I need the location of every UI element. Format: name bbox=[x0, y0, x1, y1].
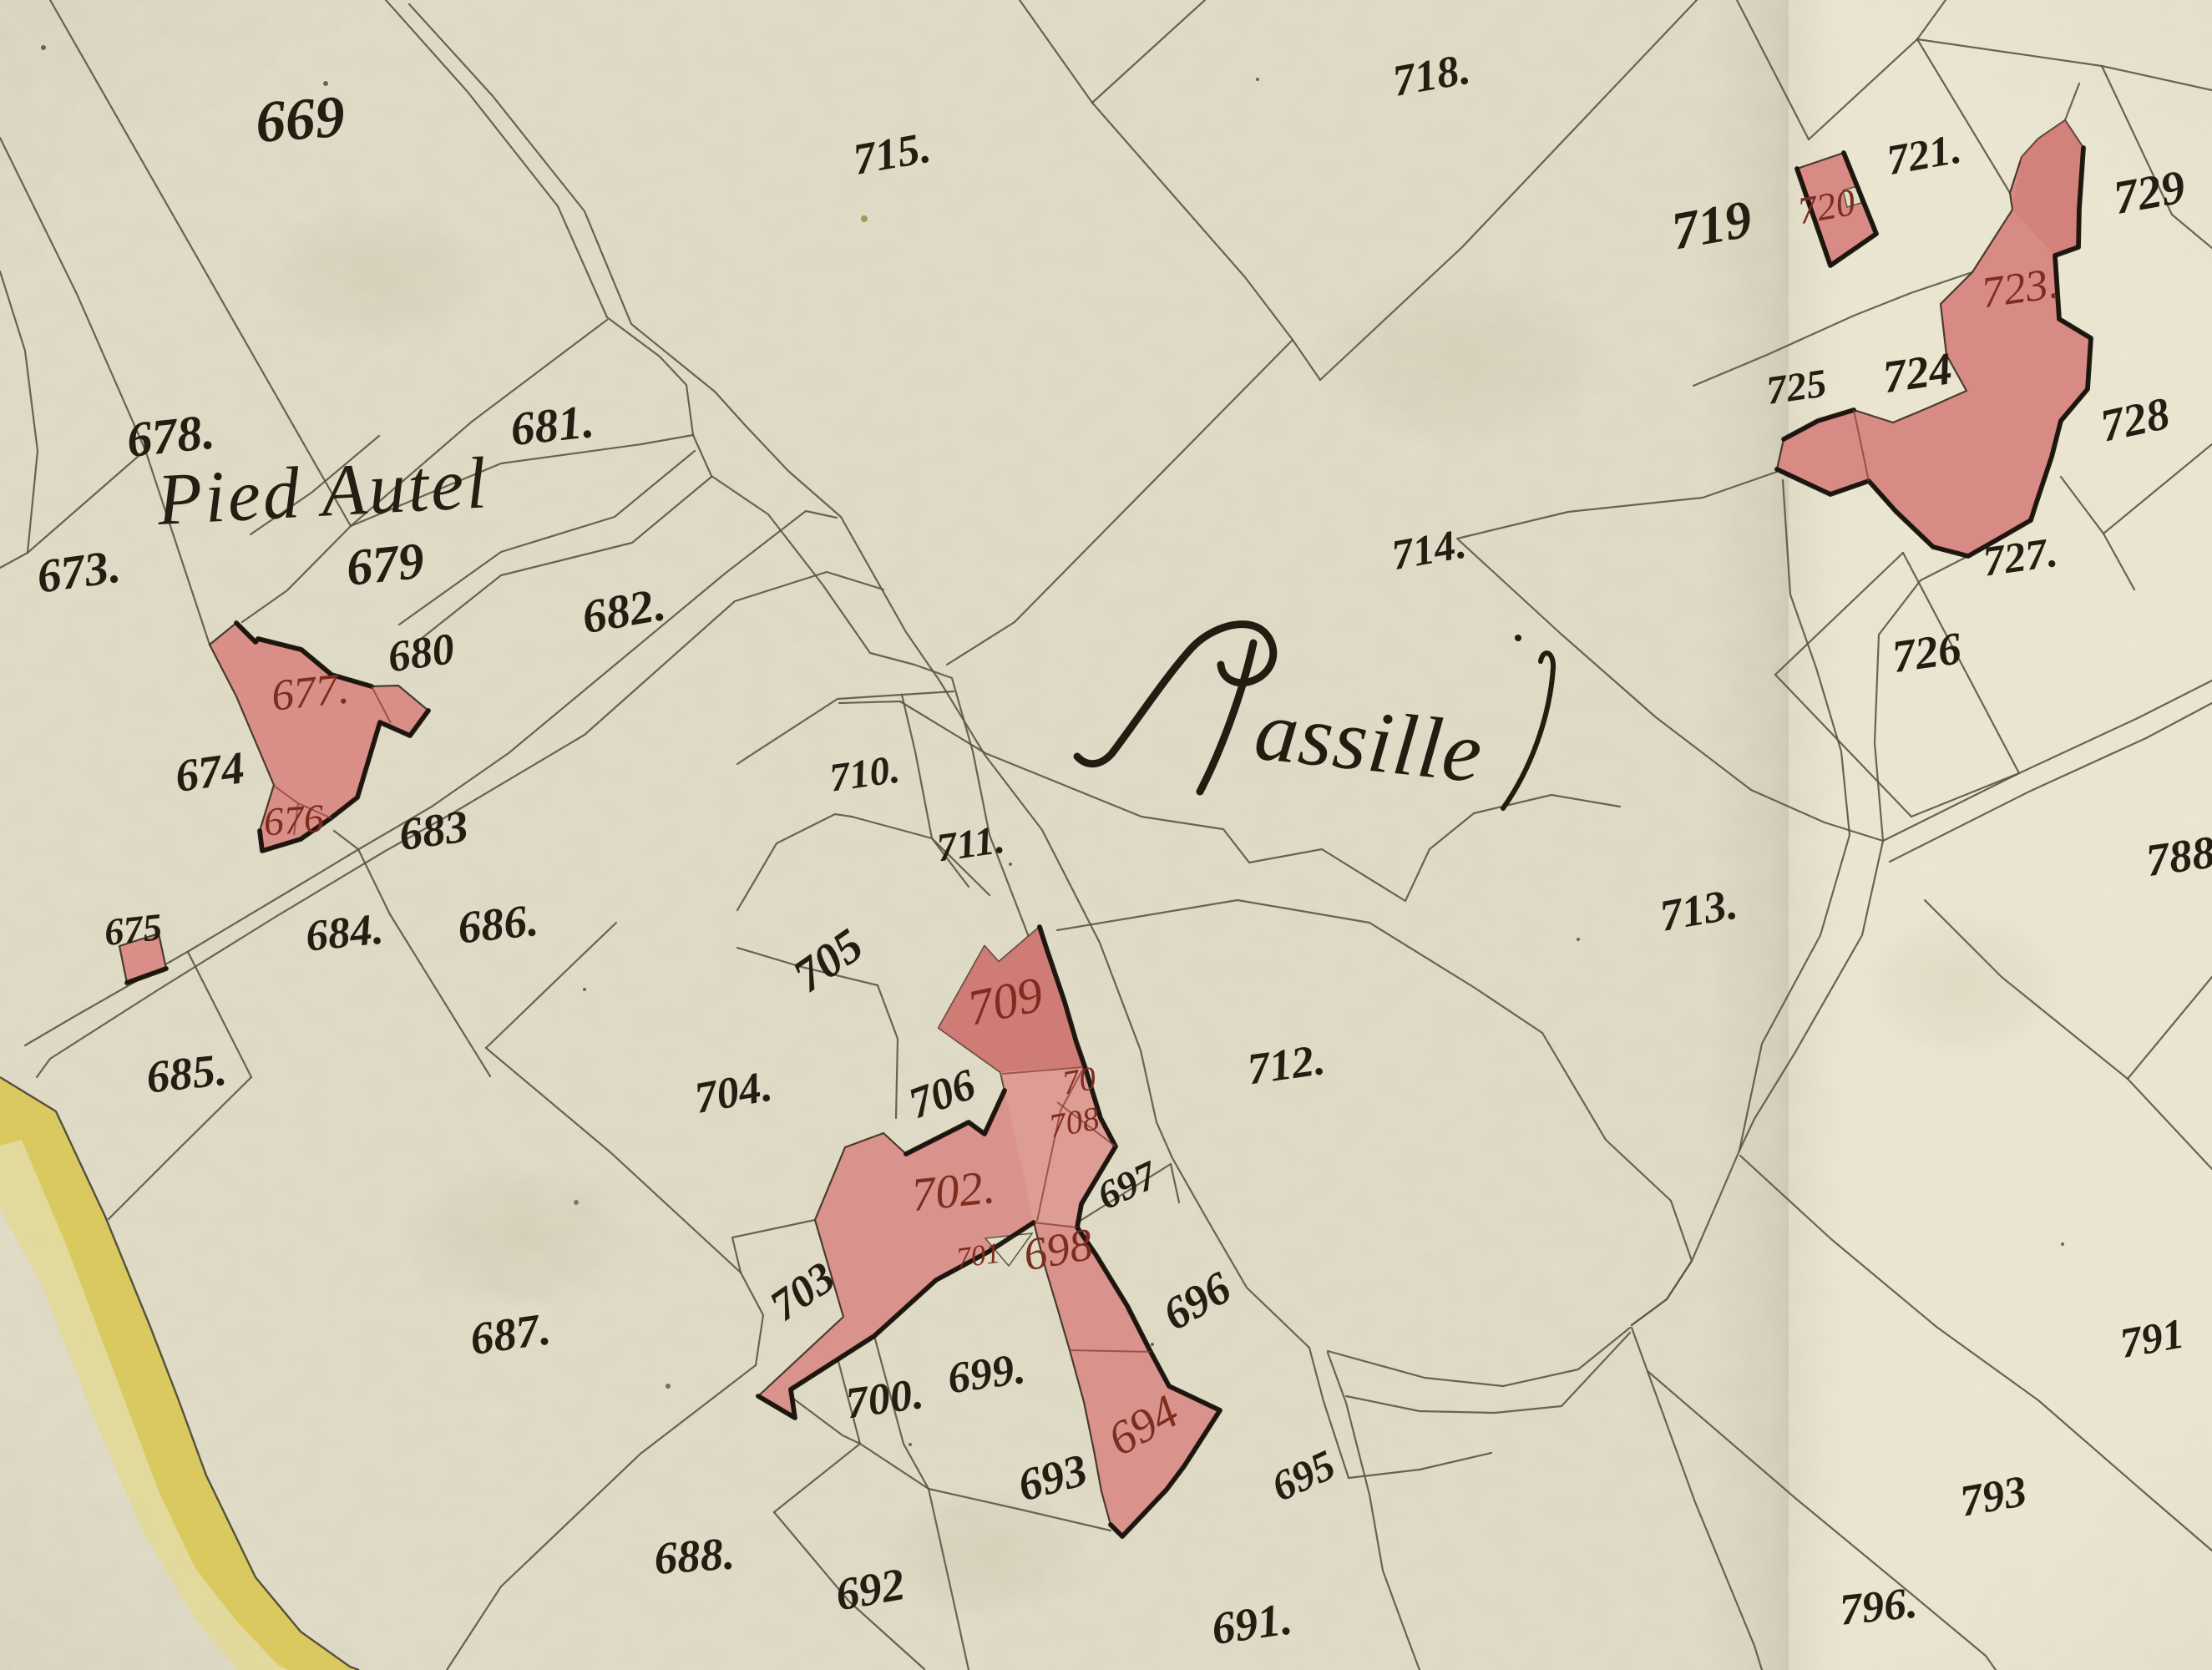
svg-text:725: 725 bbox=[1764, 361, 1830, 413]
svg-text:681.: 681. bbox=[509, 395, 597, 456]
svg-text:677.: 677. bbox=[269, 664, 351, 720]
svg-text:686.: 686. bbox=[455, 894, 540, 954]
svg-text:724: 724 bbox=[1880, 342, 1955, 402]
svg-text:676: 676 bbox=[262, 797, 326, 845]
svg-text:70: 70 bbox=[1060, 1059, 1099, 1101]
svg-text:675: 675 bbox=[103, 905, 165, 954]
svg-text:796.: 796. bbox=[1837, 1578, 1919, 1634]
svg-text:701: 701 bbox=[954, 1237, 1002, 1275]
svg-text:711.: 711. bbox=[934, 817, 1007, 871]
svg-text:679: 679 bbox=[344, 533, 428, 597]
svg-text:685.: 685. bbox=[144, 1044, 229, 1103]
svg-text:669: 669 bbox=[254, 84, 347, 155]
svg-text:680: 680 bbox=[385, 625, 458, 681]
svg-text:683: 683 bbox=[396, 800, 471, 860]
svg-text:726: 726 bbox=[1889, 622, 1965, 682]
svg-text:674: 674 bbox=[172, 741, 247, 802]
svg-text:688.: 688. bbox=[652, 1527, 736, 1584]
svg-text:702.: 702. bbox=[909, 1161, 998, 1222]
svg-text:684.: 684. bbox=[303, 904, 385, 960]
svg-text:678.: 678. bbox=[124, 403, 217, 468]
svg-text:788: 788 bbox=[2143, 826, 2212, 886]
